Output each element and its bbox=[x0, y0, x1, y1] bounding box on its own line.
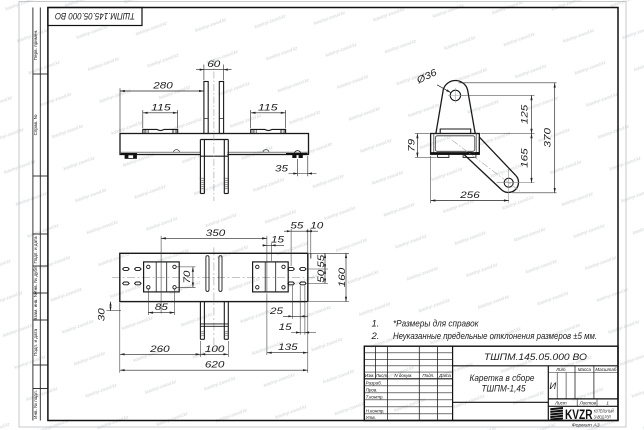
svg-text:1.: 1. bbox=[372, 318, 380, 329]
svg-text:Утв.: Утв. bbox=[366, 415, 376, 420]
svg-text:85: 85 bbox=[155, 302, 169, 313]
svg-text:115: 115 bbox=[258, 102, 278, 113]
svg-text:115: 115 bbox=[151, 102, 171, 113]
svg-text:Лит.: Лит. bbox=[555, 367, 567, 372]
svg-text:55: 55 bbox=[290, 220, 304, 231]
svg-text:10: 10 bbox=[310, 220, 324, 231]
svg-text:Неуказанные предельные отклоне: Неуказанные предельные отклонения размер… bbox=[393, 331, 597, 342]
svg-text:370: 370 bbox=[543, 127, 554, 147]
svg-text:Взам. инв. №: Взам. инв. № bbox=[33, 292, 38, 321]
svg-text:Формат А3: Формат А3 bbox=[572, 423, 601, 428]
svg-text:Листов: Листов bbox=[579, 400, 597, 405]
svg-text:Подп.: Подп. bbox=[422, 373, 434, 378]
svg-text:Подп. и дата: Подп. и дата bbox=[33, 329, 38, 357]
svg-text:Разраб.: Разраб. bbox=[366, 380, 382, 385]
svg-text:15: 15 bbox=[279, 322, 293, 333]
svg-text:Перв. примен.: Перв. примен. bbox=[33, 30, 38, 61]
svg-text:Масштаб: Масштаб bbox=[595, 367, 616, 372]
svg-text:60: 60 bbox=[207, 59, 221, 70]
svg-text:160: 160 bbox=[337, 267, 348, 287]
svg-text:620: 620 bbox=[205, 360, 225, 371]
svg-text:Масса: Масса bbox=[578, 367, 592, 372]
svg-text:Инв. № подл.: Инв. № подл. bbox=[33, 390, 38, 419]
svg-text:Подп. и дата: Подп. и дата bbox=[33, 236, 38, 264]
svg-text:100: 100 bbox=[205, 344, 225, 355]
svg-text:50: 50 bbox=[316, 269, 327, 283]
svg-text:25: 25 bbox=[269, 306, 284, 317]
svg-text:135: 135 bbox=[278, 342, 298, 353]
svg-text:35: 35 bbox=[275, 163, 289, 174]
svg-text:Н.контр.: Н.контр. bbox=[366, 408, 385, 413]
svg-text:ТШПМ-1,45: ТШПМ-1,45 bbox=[482, 383, 527, 394]
svg-text:280: 280 bbox=[152, 81, 174, 92]
svg-text:Справ. №: Справ. № bbox=[33, 115, 38, 136]
svg-text:Инв. № дубл.: Инв. № дубл. bbox=[33, 265, 38, 293]
svg-text:165: 165 bbox=[520, 147, 531, 167]
svg-text:350: 350 bbox=[206, 228, 226, 239]
svg-text:Лист: Лист bbox=[554, 400, 567, 405]
svg-text:Лист: Лист bbox=[375, 373, 388, 378]
svg-text:55: 55 bbox=[316, 254, 327, 268]
svg-text:70: 70 bbox=[182, 270, 193, 284]
svg-text:КОТЕЛЬНЫЙ: КОТЕЛЬНЫЙ bbox=[594, 409, 615, 414]
svg-text:KVZR: KVZR bbox=[565, 407, 593, 422]
svg-text:N докум.: N докум. bbox=[394, 373, 412, 378]
svg-text:256: 256 bbox=[459, 190, 481, 201]
svg-text:*Размеры для справок: *Размеры для справок bbox=[393, 318, 479, 329]
svg-text:И: И bbox=[549, 381, 556, 392]
svg-text:Т.контр.: Т.контр. bbox=[366, 394, 384, 399]
svg-text:Изм.: Изм. bbox=[365, 373, 375, 378]
svg-text:260: 260 bbox=[149, 344, 171, 355]
svg-text:ТШПМ.145.05.000 ВО: ТШПМ.145.05.000 ВО bbox=[484, 352, 588, 363]
svg-text:125: 125 bbox=[520, 104, 531, 124]
svg-text:Пров.: Пров. bbox=[366, 387, 378, 392]
svg-text:79: 79 bbox=[407, 138, 418, 152]
svg-text:30: 30 bbox=[96, 307, 107, 321]
svg-text:2.: 2. bbox=[371, 331, 380, 342]
svg-text:ЗАВОД РЭП: ЗАВОД РЭП bbox=[594, 414, 612, 419]
svg-text:ТШПМ.145.05.000 ВО: ТШПМ.145.05.000 ВО bbox=[54, 10, 135, 21]
svg-text:Дата: Дата bbox=[438, 373, 451, 378]
svg-text:15: 15 bbox=[271, 235, 285, 246]
